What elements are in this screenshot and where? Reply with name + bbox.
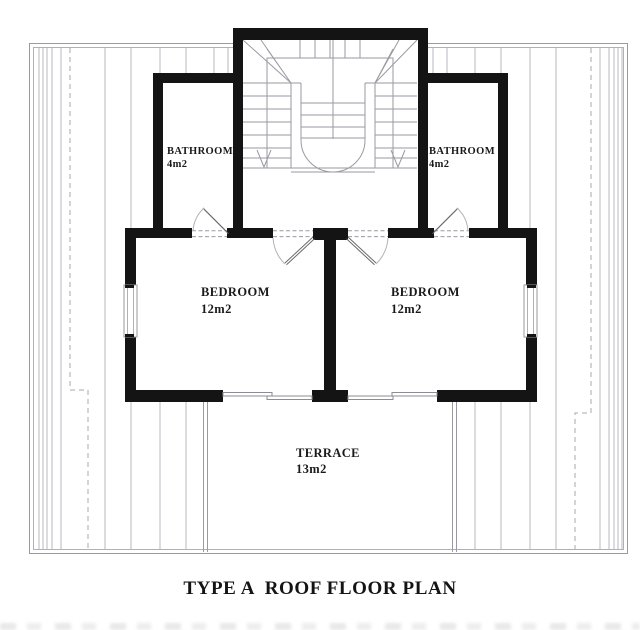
room-name: BEDROOM: [391, 284, 460, 301]
bedroom-left-label: BEDROOM 12m2: [201, 284, 270, 318]
room-area: 13m2: [296, 461, 360, 477]
plan-title: TYPE A ROOF FLOOR PLAN: [0, 578, 640, 600]
room-area: 12m2: [201, 301, 270, 318]
room-name: BEDROOM: [201, 284, 270, 301]
bottom-cutoff-smudge: [0, 623, 640, 630]
room-area: 4m2: [429, 159, 495, 172]
room-area: 12m2: [391, 301, 460, 318]
bedroom-top-wall-seg: [227, 228, 273, 238]
bathroom-right-label: BATHROOM 4m2: [429, 146, 495, 171]
bedroom-right-wall-seg: [526, 228, 537, 285]
bedroom-top-wall-seg: [388, 228, 434, 238]
bathroom-left-top-wall: [153, 73, 243, 83]
room-name: BATHROOM: [429, 146, 495, 159]
bedroom-right-label: BEDROOM 12m2: [391, 284, 460, 318]
stair-left-wall: [233, 28, 243, 238]
bathroom-right-top-wall: [418, 73, 508, 83]
party-wall: [324, 238, 336, 392]
bathroom-right-side-wall: [498, 73, 508, 238]
terrace-label: TERRACE 13m2: [296, 445, 360, 477]
bathroom-left-side-wall: [153, 73, 163, 238]
bedroom-left-wall-seg: [125, 228, 136, 285]
window-left-bedroom: [124, 285, 137, 337]
window-right-bedroom: [524, 285, 537, 337]
bedroom-bottom-wall-seg: [437, 390, 537, 402]
room-area: 4m2: [167, 159, 233, 172]
party-wall-bottom-cap: [312, 390, 348, 402]
stair-right-wall: [418, 28, 428, 238]
floor-plan-page: BATHROOM 4m2 BATHROOM 4m2 BEDROOM 12m2 B…: [0, 0, 640, 630]
room-name: BATHROOM: [167, 146, 233, 159]
floor-plan-drawing: [0, 0, 640, 630]
bedroom-bottom-wall-seg: [125, 390, 223, 402]
room-name: TERRACE: [296, 445, 360, 461]
bathroom-left-label: BATHROOM 4m2: [167, 146, 233, 171]
stair-top-wall: [233, 28, 428, 40]
